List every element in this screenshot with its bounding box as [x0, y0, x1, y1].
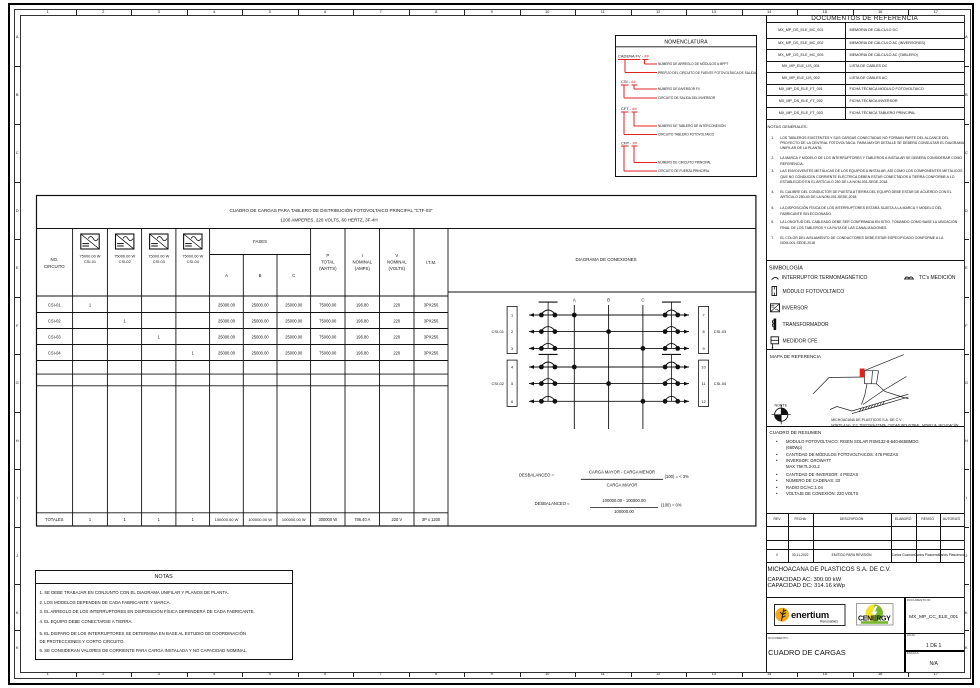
- svg-text:4: 4: [511, 365, 514, 370]
- svg-text:I.T.M.: I.T.M.: [426, 260, 437, 265]
- svg-text:CIRCUITO: CIRCUITO: [44, 264, 65, 269]
- svg-text:MÓDULO FOTOVOLTAICO: MÓDULO FOTOVOLTAICO: [783, 288, 845, 295]
- svg-text:75000.00: 75000.00: [319, 335, 337, 340]
- svg-text:3PX250: 3PX250: [424, 303, 439, 308]
- svg-text:CFT - ##: CFT - ##: [621, 106, 637, 111]
- svg-text:CSI-04: CSI-04: [714, 381, 727, 386]
- svg-text:25000.00: 25000.00: [285, 303, 303, 308]
- svg-text:CSI-03: CSI-03: [714, 329, 727, 334]
- svg-text:CSI-01: CSI-01: [492, 329, 505, 334]
- svg-text:25000.00: 25000.00: [218, 319, 236, 324]
- svg-text:CUADRO DE CARGAS PARA TABLERO: CUADRO DE CARGAS PARA TABLERO DE DISTRIB…: [230, 207, 433, 213]
- svg-text:DIAGRAMA DE CONEXIONES: DIAGRAMA DE CONEXIONES: [576, 257, 637, 262]
- svg-text:786.40 A: 786.40 A: [354, 517, 370, 522]
- svg-text:1: 1: [511, 313, 513, 318]
- svg-text:CSI-03: CSI-03: [153, 259, 165, 264]
- svg-text:75000.00 W: 75000.00 W: [148, 254, 169, 259]
- svg-text:CADENA FV - ##: CADENA FV - ##: [618, 54, 649, 59]
- svg-text:100000.00 W: 100000.00 W: [215, 517, 239, 522]
- svg-text:(WATTS): (WATTS): [319, 266, 337, 271]
- svg-text:1: 1: [89, 517, 92, 522]
- svg-text:CARGA MAYOR - CARGA MENOR: CARGA MAYOR - CARGA MENOR: [589, 470, 655, 475]
- svg-text:NO.: NO.: [50, 257, 58, 262]
- svg-text:CSI-01: CSI-01: [48, 303, 61, 308]
- svg-text:CARGA MAYOR: CARGA MAYOR: [607, 483, 638, 488]
- svg-text:PREFIJO DEL CIRCUITO DE FUENTE: PREFIJO DEL CIRCUITO DE FUENTE FOTOVOLTA…: [658, 71, 757, 75]
- svg-text:1: 1: [124, 517, 127, 522]
- svg-text:NOMINAL: NOMINAL: [387, 260, 407, 265]
- svg-text:10: 10: [701, 365, 706, 370]
- svg-text:MEDIDOR CFE: MEDIDOR CFE: [783, 338, 819, 344]
- svg-text:1: 1: [124, 319, 127, 324]
- svg-text:11: 11: [702, 381, 706, 386]
- svg-text:1: 1: [192, 351, 195, 356]
- svg-text:TC's MEDICIÓN: TC's MEDICIÓN: [919, 274, 956, 281]
- svg-text:TOTAL: TOTAL: [321, 260, 335, 265]
- svg-text:CSI-02: CSI-02: [492, 381, 505, 386]
- svg-text:100000.00 W: 100000.00 W: [248, 517, 272, 522]
- svg-text:NÚMERO DE CIRCUITO PRINCIPAL: NÚMERO DE CIRCUITO PRINCIPAL: [658, 160, 711, 165]
- svg-text:I: I: [362, 253, 363, 258]
- svg-text:NORTE 4 No. 313, TERCERA ETAPA: NORTE 4 No. 313, TERCERA ETAPA, CIUDAD I…: [831, 423, 959, 427]
- svg-text:INTERRUPTOR TERMOMAGNÉTICO: INTERRUPTOR TERMOMAGNÉTICO: [782, 274, 868, 281]
- svg-text:enertium: enertium: [791, 609, 829, 620]
- svg-text:3PX250: 3PX250: [424, 319, 439, 324]
- svg-text:220: 220: [393, 303, 401, 308]
- svg-text:3: 3: [511, 346, 513, 351]
- svg-text:25000.00: 25000.00: [285, 335, 303, 340]
- svg-text:7: 7: [703, 313, 705, 318]
- svg-text:V: V: [395, 253, 398, 258]
- svg-text:B: B: [259, 273, 262, 278]
- svg-text:CSI - ##: CSI - ##: [621, 79, 636, 84]
- svg-text:100000.00 - 100000.00: 100000.00 - 100000.00: [602, 498, 646, 503]
- svg-text:CSI-03: CSI-03: [48, 335, 61, 340]
- svg-text:1200 AMPERES, 220 VOLTS, 60 HE: 1200 AMPERES, 220 VOLTS, 60 HERTZ, 3F-4H: [280, 217, 377, 222]
- svg-text:75000.00 W: 75000.00 W: [182, 254, 203, 259]
- svg-text:25000.00: 25000.00: [252, 303, 270, 308]
- svg-text:P: P: [326, 253, 329, 258]
- svg-text:6: 6: [511, 399, 513, 404]
- svg-text:TOTALES: TOTALES: [45, 517, 64, 522]
- svg-text:75000.00: 75000.00: [319, 351, 337, 356]
- svg-text:DESBALANCEO =: DESBALANCEO =: [519, 473, 555, 478]
- svg-text:75000.00 W: 75000.00 W: [80, 254, 101, 259]
- svg-text:196.80: 196.80: [356, 303, 369, 308]
- svg-text:100000.00 W: 100000.00 W: [282, 517, 306, 522]
- svg-text:C: C: [292, 273, 295, 278]
- svg-text:300000 W: 300000 W: [318, 517, 337, 522]
- svg-text:NÚMERO DE TABLERO DE INTERCONE: NÚMERO DE TABLERO DE INTERCONEXIÓN: [658, 123, 726, 128]
- svg-text:FASES: FASES: [253, 239, 267, 244]
- svg-text:25000.00: 25000.00: [252, 335, 270, 340]
- svg-text:1: 1: [89, 303, 92, 308]
- svg-text:75000.00: 75000.00: [319, 319, 337, 324]
- svg-text:CSI-04: CSI-04: [187, 259, 200, 264]
- svg-text:INVERSOR: INVERSOR: [782, 305, 809, 311]
- svg-text:196.80: 196.80: [356, 335, 369, 340]
- svg-text:25000.00: 25000.00: [218, 351, 236, 356]
- svg-text:DESBALANCEO =: DESBALANCEO =: [535, 501, 571, 506]
- svg-text:2: 2: [511, 329, 513, 334]
- svg-text:1: 1: [158, 517, 161, 522]
- svg-text:NÚMERO DE ARREGLO DE MÓDULOS A: NÚMERO DE ARREGLO DE MÓDULOS A MPPT: [658, 61, 729, 66]
- svg-text:196.80: 196.80: [356, 319, 369, 324]
- svg-text:TRANSFORMADOR: TRANSFORMADOR: [783, 322, 830, 328]
- svg-text:75000.00 W: 75000.00 W: [114, 254, 135, 259]
- svg-text:25000.00: 25000.00: [252, 319, 270, 324]
- svg-text:CIRCUITO TABLERO FOTOVOLTAICO: CIRCUITO TABLERO FOTOVOLTAICO: [658, 133, 715, 137]
- svg-text:CSI-02: CSI-02: [48, 319, 61, 324]
- svg-text:75000.00: 75000.00: [319, 303, 337, 308]
- svg-text:220: 220: [393, 319, 401, 324]
- svg-text:220: 220: [393, 351, 401, 356]
- svg-text:MICHOACANA DE PLASTICOS S.A. D: MICHOACANA DE PLASTICOS S.A. DE C.V.: [831, 417, 902, 421]
- svg-text:SIMBOLOGÍA: SIMBOLOGÍA: [769, 264, 803, 271]
- svg-text:(100) = < 3%: (100) = < 3%: [665, 474, 689, 479]
- svg-text:8: 8: [703, 329, 705, 334]
- svg-text:3P x 1200: 3P x 1200: [422, 517, 441, 522]
- svg-text:(100) = 0%: (100) = 0%: [661, 502, 682, 507]
- svg-text:12: 12: [701, 399, 705, 404]
- svg-text:MAPA DE REFERENCIA: MAPA DE REFERENCIA: [770, 353, 822, 358]
- svg-text:25000.00: 25000.00: [218, 335, 236, 340]
- svg-text:(VOLTS): (VOLTS): [388, 266, 405, 271]
- svg-text:Renovables: Renovables: [820, 619, 838, 623]
- svg-text:CSI-02: CSI-02: [119, 259, 131, 264]
- svg-text:25000.00: 25000.00: [285, 351, 303, 356]
- svg-text:C: C: [641, 298, 644, 303]
- svg-text:NOMENCLATURA: NOMENCLATURA: [664, 40, 708, 46]
- svg-text:CIRCUITO DE SALIDA DEL INVERSO: CIRCUITO DE SALIDA DEL INVERSOR: [658, 96, 716, 100]
- svg-text:NÚMERO DE INVERSOR FV: NÚMERO DE INVERSOR FV: [658, 86, 701, 91]
- svg-text:3PX250: 3PX250: [424, 351, 439, 356]
- svg-text:220 V: 220 V: [391, 517, 402, 522]
- svg-text:220: 220: [393, 335, 401, 340]
- svg-text:A: A: [573, 298, 576, 303]
- svg-text:9: 9: [703, 346, 705, 351]
- svg-text:CFP - ##: CFP - ##: [621, 140, 638, 145]
- svg-text:A: A: [225, 273, 228, 278]
- svg-text:3PX250: 3PX250: [424, 335, 439, 340]
- svg-text:25000.00: 25000.00: [252, 351, 270, 356]
- svg-text:1: 1: [158, 335, 161, 340]
- svg-text:(AMPS): (AMPS): [355, 266, 371, 271]
- svg-text:25000.00: 25000.00: [218, 303, 236, 308]
- svg-text:B: B: [607, 298, 610, 303]
- svg-text:CSI-04: CSI-04: [48, 351, 61, 356]
- svg-text:CSI-01: CSI-01: [84, 259, 96, 264]
- svg-text:NOMINAL: NOMINAL: [353, 260, 373, 265]
- svg-text:196.80: 196.80: [356, 351, 369, 356]
- svg-text:100000.00: 100000.00: [614, 509, 634, 514]
- svg-text:25000.00: 25000.00: [285, 319, 303, 324]
- svg-text:CIRCUITO DE FUERZA PRINCIPAL: CIRCUITO DE FUERZA PRINCIPAL: [658, 169, 710, 173]
- svg-text:5: 5: [511, 381, 513, 386]
- svg-text:1: 1: [192, 517, 195, 522]
